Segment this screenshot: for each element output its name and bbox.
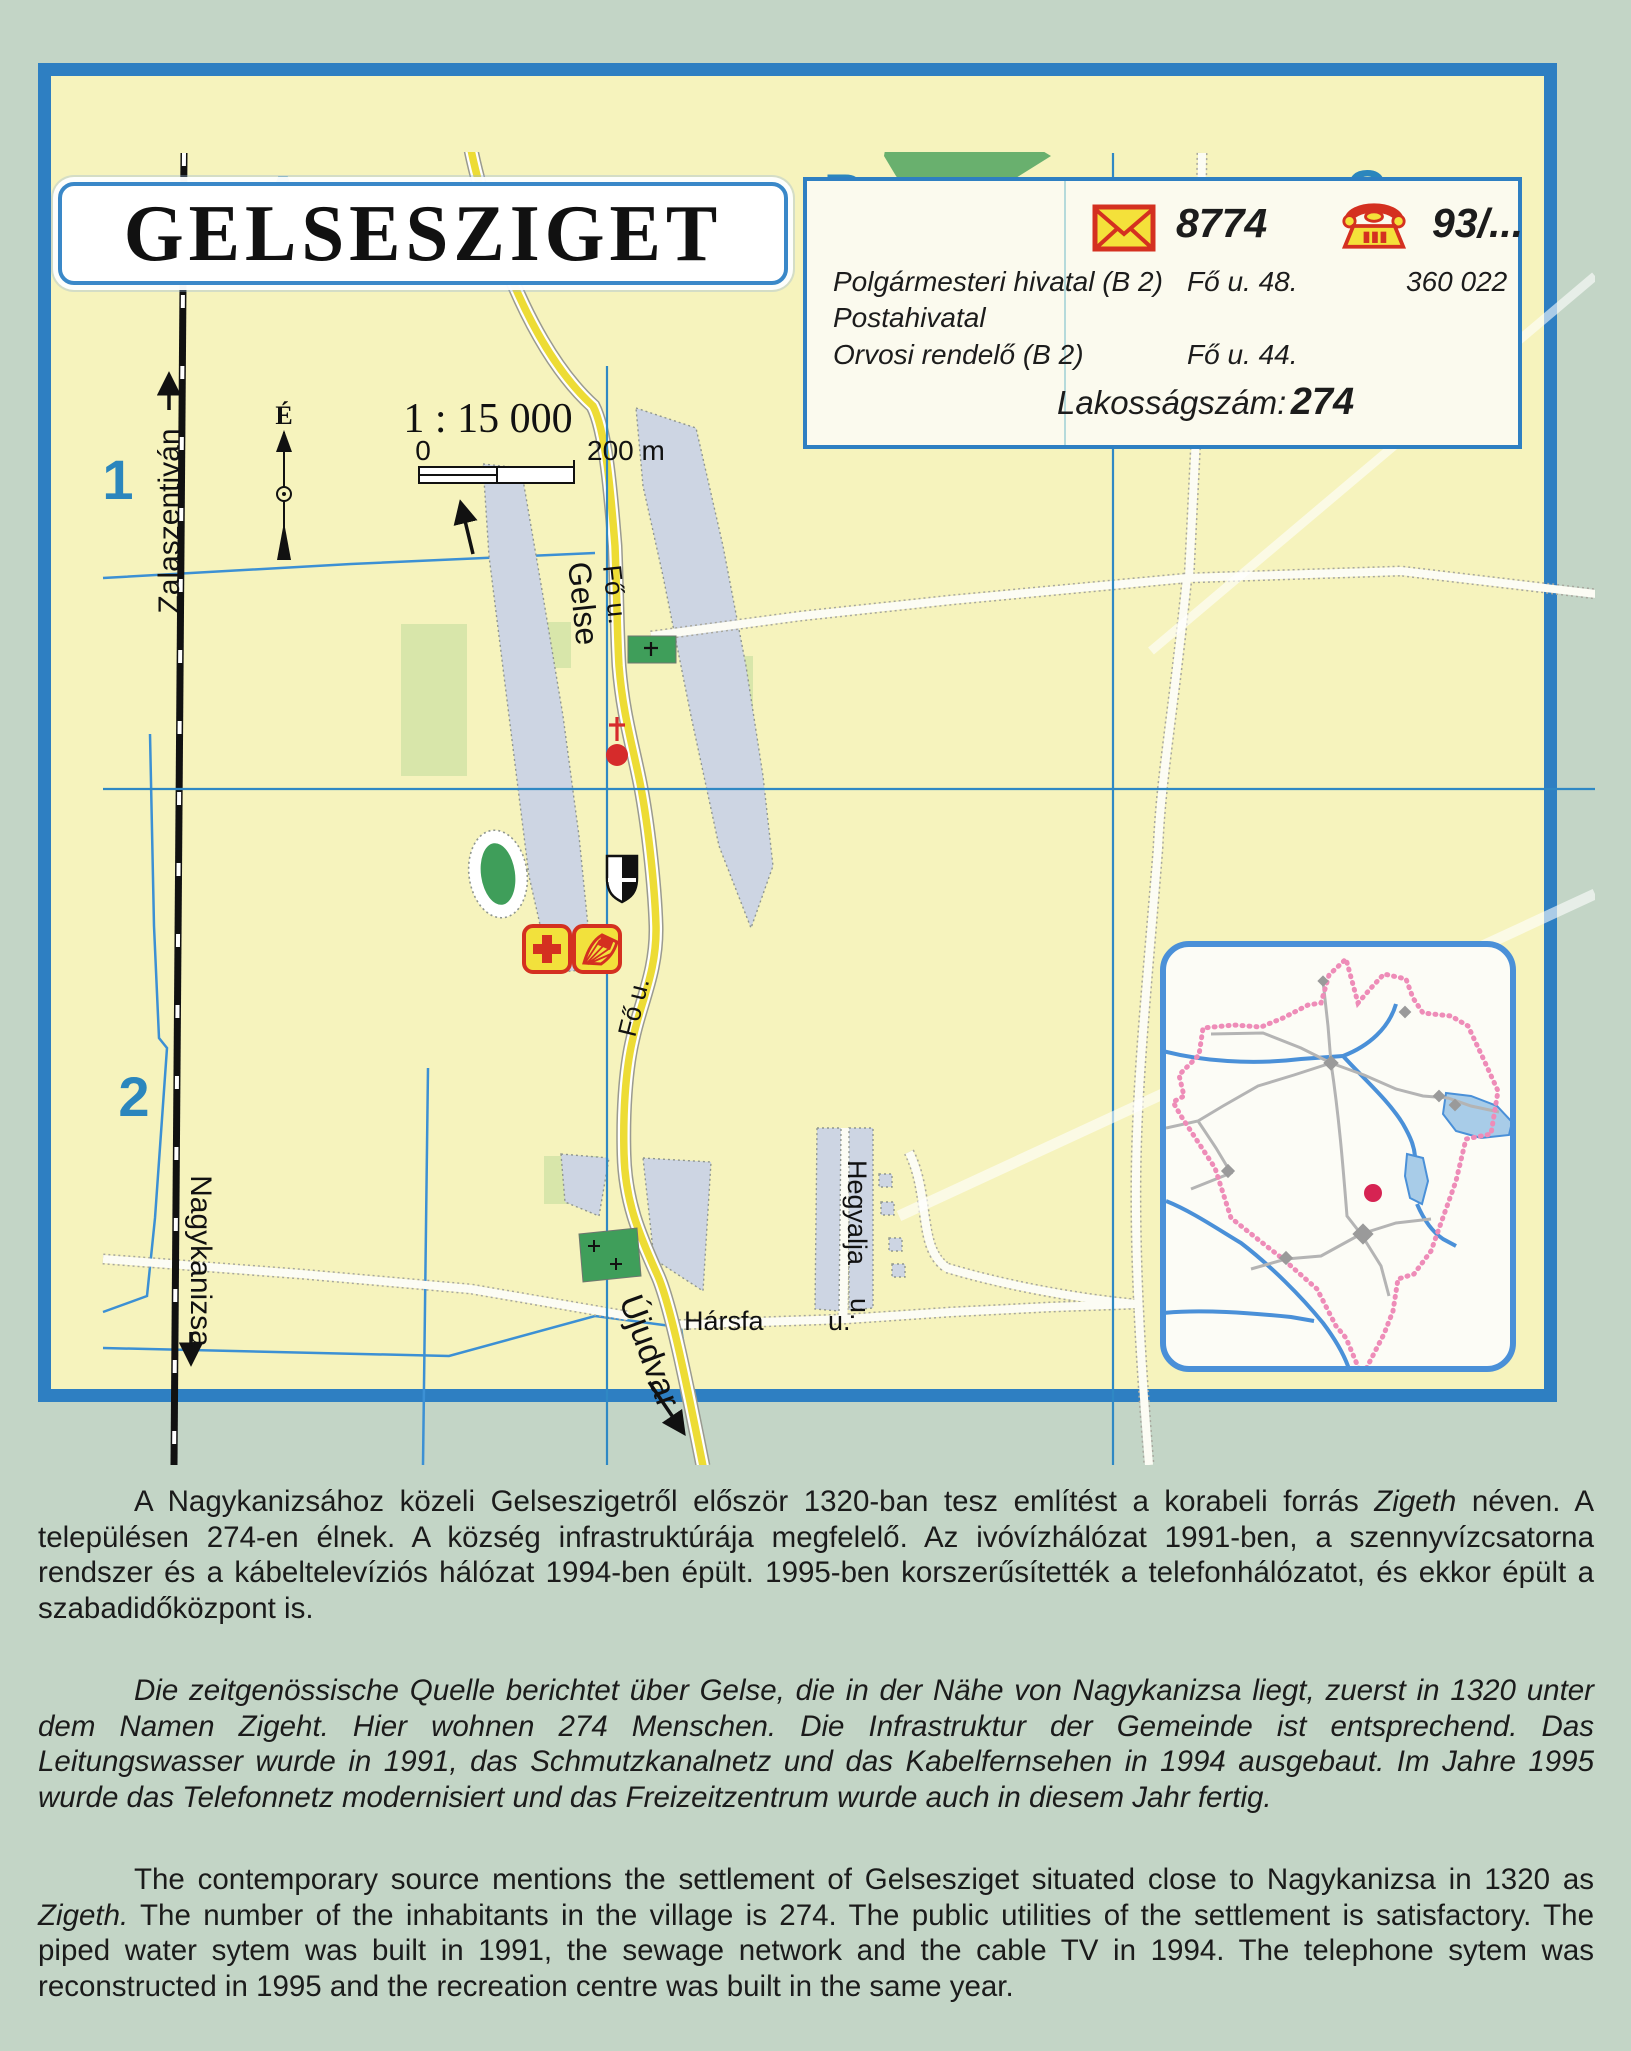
shield-icon	[607, 856, 637, 902]
north-arrow-icon	[276, 430, 292, 560]
road-label-hegyalja: Hegyalja	[842, 1160, 872, 1266]
cemetery-north	[628, 636, 676, 663]
railway-label-north: Zalaszentiván	[153, 428, 186, 613]
scale-zero: 0	[415, 435, 431, 466]
entry-name: Orvosi rendelő (B 2)	[833, 339, 1084, 371]
road-label-fo-u-1: Fő u.	[597, 563, 633, 625]
grid-row-2: 2	[118, 1065, 149, 1128]
entry-name: Postahivatal	[833, 302, 986, 334]
gelse-arrow	[461, 504, 473, 554]
paragraph-english: The contemporary source mentions the set…	[38, 1862, 1594, 2004]
postal-code: 8774	[1176, 200, 1267, 247]
road-label-hegyalja-u: u.	[845, 1298, 875, 1321]
population-line: Lakosságszám: 274	[1057, 381, 1354, 424]
entry-address: Fő u. 48.	[1187, 266, 1298, 298]
population-value: 274	[1291, 381, 1354, 423]
phone-prefix: 93/...	[1432, 200, 1523, 247]
scale-bar	[419, 460, 574, 483]
scale-end: 200 m	[587, 435, 665, 466]
north-label: É	[275, 401, 292, 430]
road-label-harsfa: Hársfa	[684, 1306, 765, 1336]
entry-name: Polgármesteri hivatal (B 2)	[833, 266, 1163, 298]
title-box: GELSESZIGET	[58, 182, 788, 285]
atlas-page: { "page": {"background": "#c3d5c6"}, "ma…	[0, 0, 1631, 1962]
entry-address: Fő u. 44.	[1187, 339, 1298, 371]
cemetery-south	[579, 1228, 641, 1282]
envelope-icon	[1092, 204, 1156, 257]
sports-field	[463, 826, 533, 921]
paragraph-german: Die zeitgenössische Quelle berichtet übe…	[38, 1673, 1594, 1815]
inset-village-dot	[1364, 1184, 1382, 1202]
open-book-icon	[574, 926, 620, 972]
paragraph-hungarian: A Nagykanizsához közeli Gelseszigetről e…	[38, 1484, 1594, 1626]
page-title: GELSESZIGET	[124, 187, 723, 280]
grid-row-1: 1	[102, 448, 133, 511]
rotary-phone-icon	[1341, 201, 1407, 256]
road-label-fo-u-2: Fő u.	[612, 975, 655, 1040]
description-texts: A Nagykanizsához közeli Gelseszigetről e…	[38, 1484, 1594, 2051]
info-box: 8774 93/... Polgármesteri hivatal (B 2) …	[803, 177, 1522, 449]
entry-phone: 360 022	[1406, 266, 1507, 298]
railway-label-south: Nagykanizsa	[184, 1175, 217, 1347]
population-label: Lakosságszám:	[1057, 384, 1286, 421]
inset-locator-map	[1163, 944, 1513, 1369]
red-cross-icon	[524, 926, 570, 972]
